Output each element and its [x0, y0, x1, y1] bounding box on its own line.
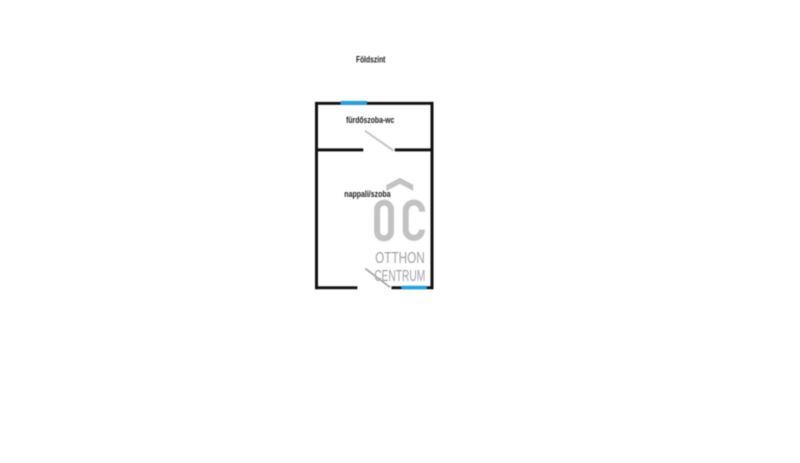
svg-text:fürdőszoba-wc: fürdőszoba-wc [346, 115, 394, 125]
svg-text:nappali/szoba: nappali/szoba [344, 189, 390, 199]
svg-text:CENTRUM: CENTRUM [374, 268, 425, 285]
svg-text:Földszint: Földszint [356, 54, 385, 64]
svg-text:OTTHON: OTTHON [375, 250, 425, 267]
